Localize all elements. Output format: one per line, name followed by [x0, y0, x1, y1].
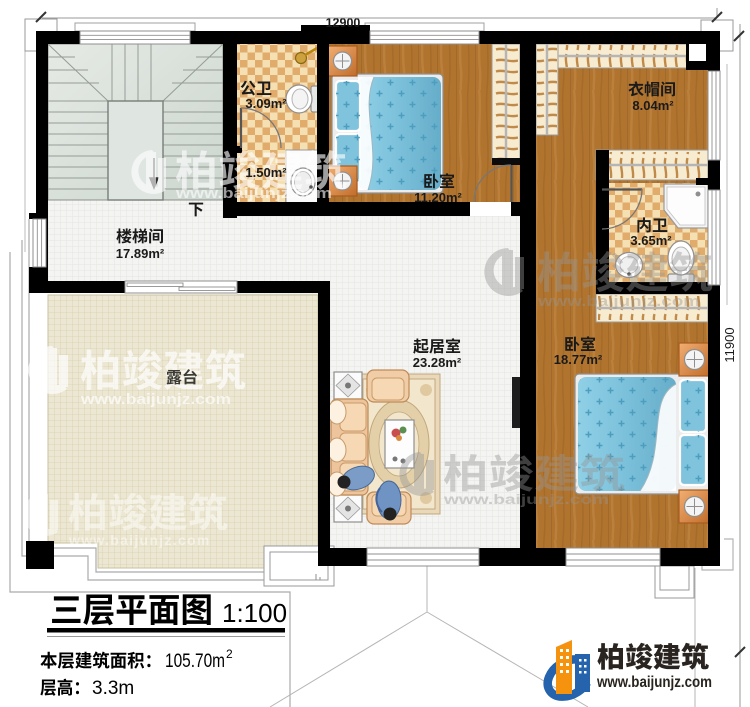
svg-text:105.70m: 105.70m [165, 651, 225, 672]
svg-text:17.89m²: 17.89m² [116, 246, 165, 261]
svg-text:www.baijunjz.com: www.baijunjz.com [596, 674, 712, 691]
svg-text:11900: 11900 [722, 327, 737, 362]
svg-text:www.baijunjz.com: www.baijunjz.com [80, 391, 231, 408]
svg-text:www.baijunjz.com: www.baijunjz.com [68, 532, 211, 548]
svg-text:18.77m²: 18.77m² [554, 352, 603, 367]
svg-text:23.28m²: 23.28m² [413, 355, 462, 370]
svg-text:www.baijunjz.com: www.baijunjz.com [537, 293, 700, 310]
svg-text:2: 2 [226, 647, 233, 661]
svg-text:3.3m: 3.3m [92, 678, 134, 699]
svg-text:1.50m²: 1.50m² [245, 165, 287, 180]
svg-text:3.09m²: 3.09m² [245, 96, 287, 111]
svg-text:8.04m²: 8.04m² [632, 98, 674, 113]
svg-text:11.20m²: 11.20m² [414, 190, 462, 205]
svg-text:3.65m²: 3.65m² [630, 233, 672, 248]
svg-text:www.baijunjz.com: www.baijunjz.com [443, 491, 609, 507]
svg-text:1:100: 1:100 [222, 598, 287, 628]
svg-text:www.baijunjz.com: www.baijunjz.com [175, 186, 332, 202]
